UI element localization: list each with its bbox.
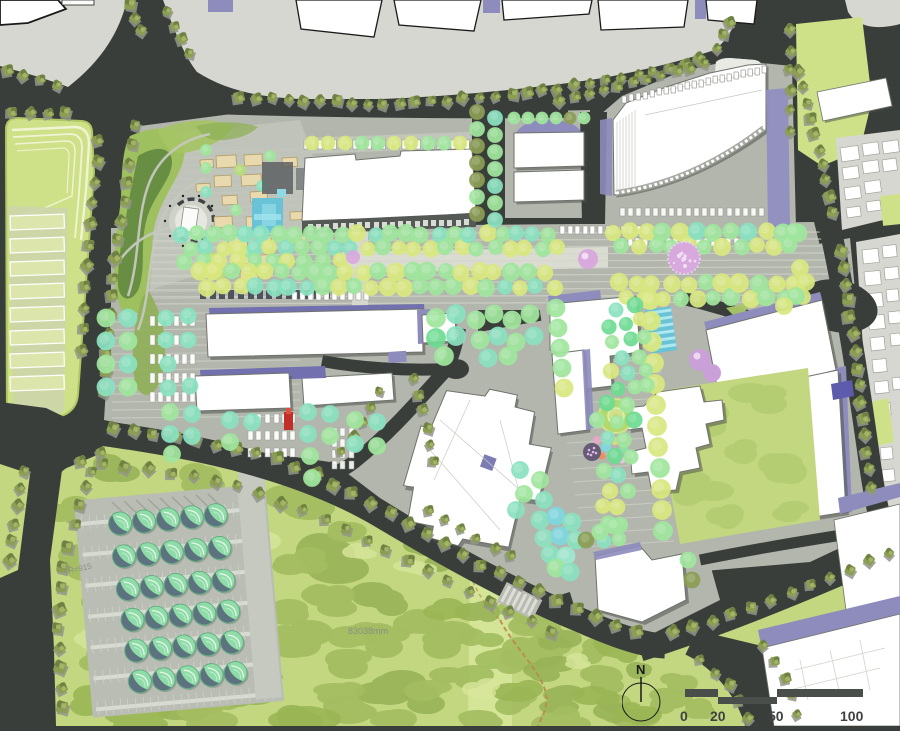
svg-text:20: 20 xyxy=(710,708,726,724)
svg-text:100: 100 xyxy=(840,708,864,724)
svg-text:50: 50 xyxy=(768,708,784,724)
svg-text:N: N xyxy=(636,662,645,677)
svg-text:0: 0 xyxy=(680,708,688,724)
